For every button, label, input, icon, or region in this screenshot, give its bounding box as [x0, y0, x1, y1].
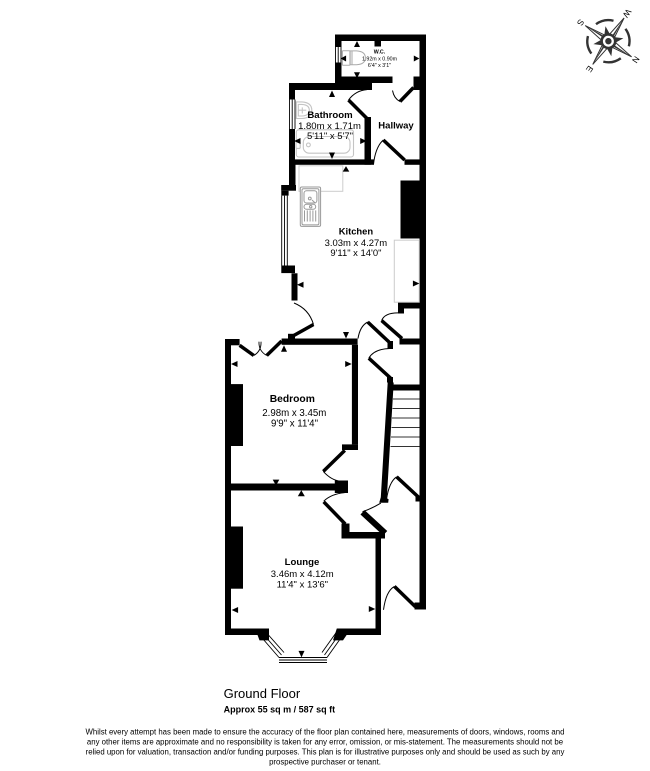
svg-text:Approx 55 sq m / 587 sq ft: Approx 55 sq m / 587 sq ft	[224, 705, 336, 715]
svg-text:2.98m x 3.45m: 2.98m x 3.45m	[262, 408, 326, 419]
svg-text:6'4" x 3'1": 6'4" x 3'1"	[368, 63, 391, 69]
svg-text:N: N	[630, 54, 642, 65]
svg-text:E: E	[584, 64, 596, 75]
svg-text:9'9" x 11'4": 9'9" x 11'4"	[271, 418, 319, 429]
svg-text:Bedroom: Bedroom	[270, 394, 315, 405]
svg-text:Lounge: Lounge	[285, 557, 320, 568]
svg-text:W: W	[621, 7, 634, 19]
svg-text:prospective purchaser or tenan: prospective purchaser or tenant.	[269, 758, 381, 767]
svg-text:11'4" x 13'6": 11'4" x 13'6"	[277, 579, 328, 590]
svg-text:Kitchen: Kitchen	[339, 226, 374, 237]
svg-text:5'11" x 5'7": 5'11" x 5'7"	[307, 131, 353, 142]
svg-text:relied upon for valuation, tra: relied upon for valuation, transaction a…	[86, 748, 565, 757]
svg-text:1.92m x 0.90m: 1.92m x 0.90m	[362, 56, 398, 62]
svg-text:Whilst every attempt has been: Whilst every attempt has been made to en…	[86, 728, 565, 737]
svg-text:Ground Floor: Ground Floor	[224, 686, 301, 701]
svg-text:Bathroom: Bathroom	[307, 110, 352, 121]
svg-text:any other items are approximat: any other items are approximate and no r…	[87, 738, 563, 747]
svg-text:W.C.: W.C.	[374, 50, 386, 56]
svg-text:9'11" x 14'0": 9'11" x 14'0"	[330, 248, 381, 259]
svg-text:Hallway: Hallway	[378, 120, 414, 131]
svg-text:S: S	[575, 17, 587, 28]
